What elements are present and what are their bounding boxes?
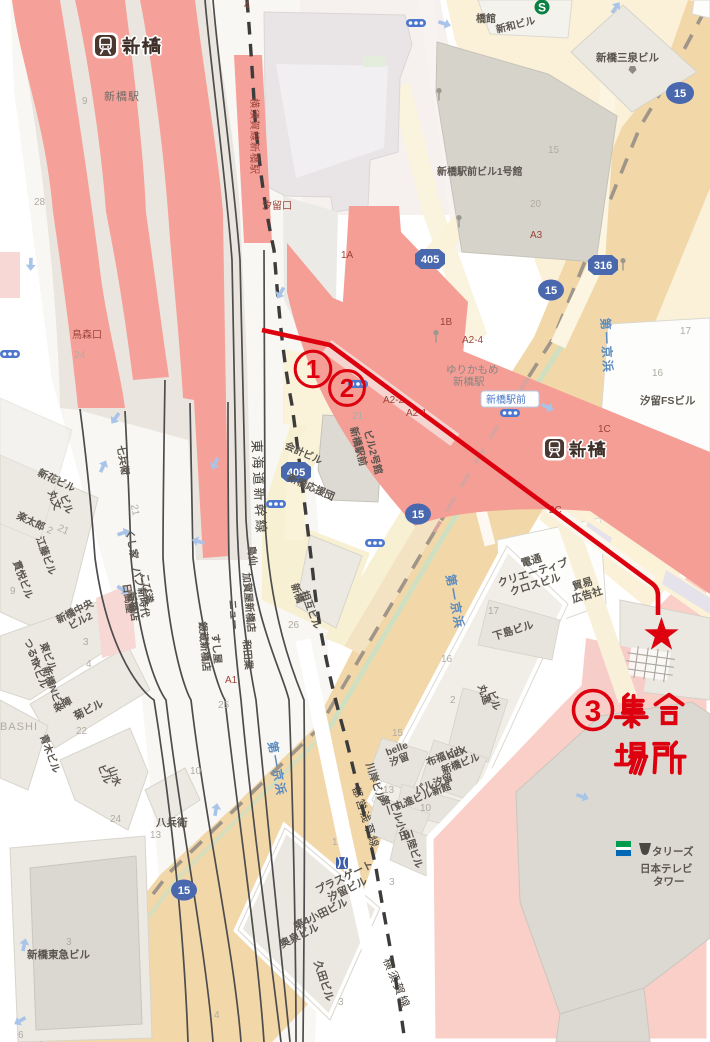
svg-text:24: 24 xyxy=(110,814,122,825)
svg-text:日本テレビ: 日本テレビ xyxy=(640,862,693,875)
svg-text:2: 2 xyxy=(450,695,456,706)
svg-text:316: 316 xyxy=(594,260,612,272)
svg-text:15: 15 xyxy=(548,145,560,156)
svg-text:22: 22 xyxy=(76,726,88,737)
svg-text:9: 9 xyxy=(10,586,16,597)
svg-text:タワー: タワー xyxy=(653,876,685,888)
svg-text:A1: A1 xyxy=(225,675,238,686)
svg-text:橋館: 橋館 xyxy=(476,12,496,25)
svg-text:1: 1 xyxy=(306,354,320,384)
svg-text:405: 405 xyxy=(421,254,439,266)
svg-text:新橋駅: 新橋駅 xyxy=(104,89,140,103)
svg-text:17: 17 xyxy=(680,326,692,337)
svg-text:第一京浜: 第一京浜 xyxy=(598,317,616,374)
svg-text:BASHI: BASHI xyxy=(0,721,38,733)
svg-text:4: 4 xyxy=(86,659,92,670)
svg-text:4: 4 xyxy=(244,0,250,11)
svg-text:汐留FSビル: 汐留FSビル xyxy=(640,394,696,407)
svg-text:八兵衛: 八兵衛 xyxy=(155,816,188,829)
svg-text:9: 9 xyxy=(82,96,88,107)
svg-text:16: 16 xyxy=(652,368,664,379)
svg-text:21: 21 xyxy=(352,411,364,422)
svg-text:鳥森口: 鳥森口 xyxy=(72,328,102,341)
svg-text:A3: A3 xyxy=(530,230,543,241)
svg-text:24: 24 xyxy=(74,350,86,361)
svg-text:新橋三泉ビル: 新橋三泉ビル xyxy=(596,51,659,64)
svg-text:3: 3 xyxy=(66,937,72,948)
svg-text:汐留口: 汐留口 xyxy=(262,199,292,212)
svg-text:15: 15 xyxy=(412,509,424,521)
svg-text:新橋駅前ビル1号館: 新橋駅前ビル1号館 xyxy=(437,165,523,178)
svg-text:横須賀線新橋駅: 横須賀線新橋駅 xyxy=(248,98,261,175)
svg-text:2: 2 xyxy=(340,373,354,403)
svg-text:1B: 1B xyxy=(440,317,453,328)
svg-text:3: 3 xyxy=(83,637,89,648)
svg-text:15: 15 xyxy=(545,285,557,297)
svg-text:10: 10 xyxy=(420,803,432,814)
svg-text:6: 6 xyxy=(18,1030,24,1041)
svg-text:15: 15 xyxy=(392,728,404,739)
svg-text:新橋駅: 新橋駅 xyxy=(453,375,485,388)
svg-text:15: 15 xyxy=(178,885,190,897)
svg-text:3: 3 xyxy=(338,997,344,1008)
svg-text:新橋駅前: 新橋駅前 xyxy=(486,393,526,406)
svg-text:16: 16 xyxy=(441,654,453,665)
svg-text:26: 26 xyxy=(288,620,300,631)
svg-text:10: 10 xyxy=(190,766,202,777)
svg-text:28: 28 xyxy=(34,197,46,208)
svg-text:17: 17 xyxy=(488,606,500,617)
svg-text:タリーズ: タリーズ xyxy=(652,845,694,858)
svg-text:1A: 1A xyxy=(341,250,354,261)
svg-text:ゆりかもめ: ゆりかもめ xyxy=(446,364,499,376)
svg-text:3: 3 xyxy=(389,877,395,888)
svg-text:7: 7 xyxy=(50,687,56,698)
svg-text:3: 3 xyxy=(585,695,602,728)
svg-text:25: 25 xyxy=(218,700,230,711)
svg-text:1C: 1C xyxy=(598,424,611,435)
svg-text:20: 20 xyxy=(530,199,542,210)
svg-text:4: 4 xyxy=(214,1010,220,1021)
svg-text:15: 15 xyxy=(674,88,686,100)
svg-text:1: 1 xyxy=(332,837,338,848)
svg-text:13: 13 xyxy=(150,830,162,841)
svg-text:新橋東急ビル: 新橋東急ビル xyxy=(27,948,90,961)
svg-text:A2-4: A2-4 xyxy=(462,335,484,346)
svg-text:S: S xyxy=(538,1,546,15)
